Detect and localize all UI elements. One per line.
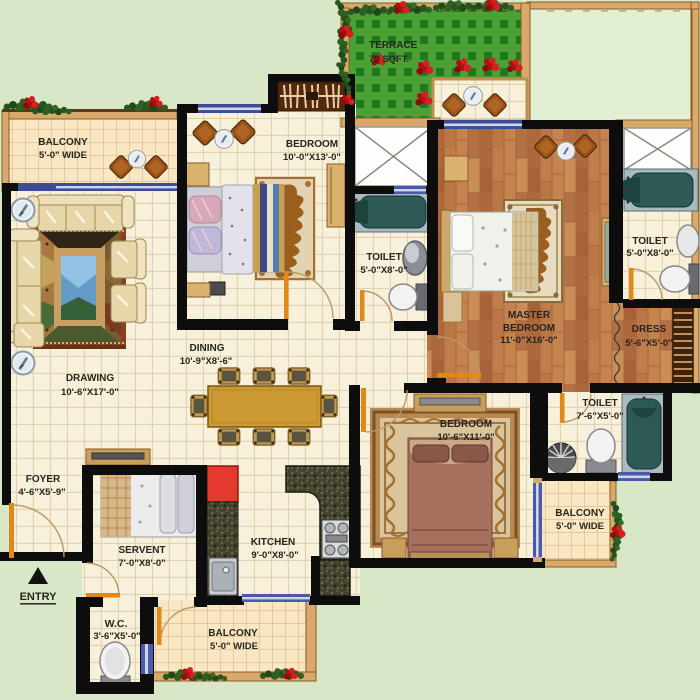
svg-text:9'-0"X8'-0": 9'-0"X8'-0": [251, 550, 298, 561]
svg-text:3'-6"X5'-0": 3'-6"X5'-0": [93, 631, 140, 642]
svg-text:MASTER: MASTER: [508, 310, 551, 321]
svg-text:7'-0"X8'-0": 7'-0"X8'-0": [118, 558, 165, 569]
svg-text:10'-0"X13'-0": 10'-0"X13'-0": [283, 152, 341, 163]
svg-text:7'-6"X5'-0": 7'-6"X5'-0": [576, 411, 623, 422]
svg-text:DRAWING: DRAWING: [66, 373, 115, 384]
svg-text:BALCONY: BALCONY: [208, 628, 258, 639]
svg-text:5'-0" WIDE: 5'-0" WIDE: [39, 150, 87, 161]
svg-text:10'-6"X11'-0": 10'-6"X11'-0": [437, 432, 494, 443]
svg-text:5'-0"X8'-0": 5'-0"X8'-0": [360, 265, 407, 276]
svg-text:ENTRY: ENTRY: [20, 591, 58, 603]
svg-text:5'-0" WIDE: 5'-0" WIDE: [556, 521, 604, 532]
svg-text:10'-9"X8'-6": 10'-9"X8'-6": [180, 356, 233, 367]
svg-text:BALCONY: BALCONY: [38, 137, 88, 148]
svg-text:10'-6"X17'-0": 10'-6"X17'-0": [61, 387, 119, 398]
svg-text:BEDROOM: BEDROOM: [440, 419, 492, 430]
svg-text:5'-0"X8'-0": 5'-0"X8'-0": [626, 248, 673, 259]
svg-text:BEDROOM: BEDROOM: [503, 323, 555, 334]
svg-text:5'-0" WIDE: 5'-0" WIDE: [210, 641, 258, 652]
svg-text:5'-6"X5'-0": 5'-6"X5'-0": [625, 338, 672, 349]
svg-text:11'-0"X16'-0": 11'-0"X16'-0": [500, 335, 557, 346]
svg-text:TOILET: TOILET: [632, 236, 667, 247]
svg-text:BEDROOM: BEDROOM: [286, 139, 338, 150]
svg-text:TOILET: TOILET: [582, 398, 617, 409]
svg-text:FOYER: FOYER: [26, 474, 61, 485]
svg-text:SERVENT: SERVENT: [118, 545, 165, 556]
svg-text:TERRACE: TERRACE: [369, 40, 418, 51]
svg-text:BALCONY: BALCONY: [555, 508, 605, 519]
svg-text:W.C.: W.C.: [105, 618, 128, 630]
svg-text:KITCHEN: KITCHEN: [251, 537, 295, 548]
svg-text:79 SQFT.: 79 SQFT.: [369, 54, 409, 65]
svg-text:4'-6"X5'-9": 4'-6"X5'-9": [18, 487, 65, 498]
svg-text:DINING: DINING: [190, 343, 225, 354]
svg-text:TOILET: TOILET: [366, 252, 401, 263]
svg-text:DRESS: DRESS: [632, 324, 667, 335]
